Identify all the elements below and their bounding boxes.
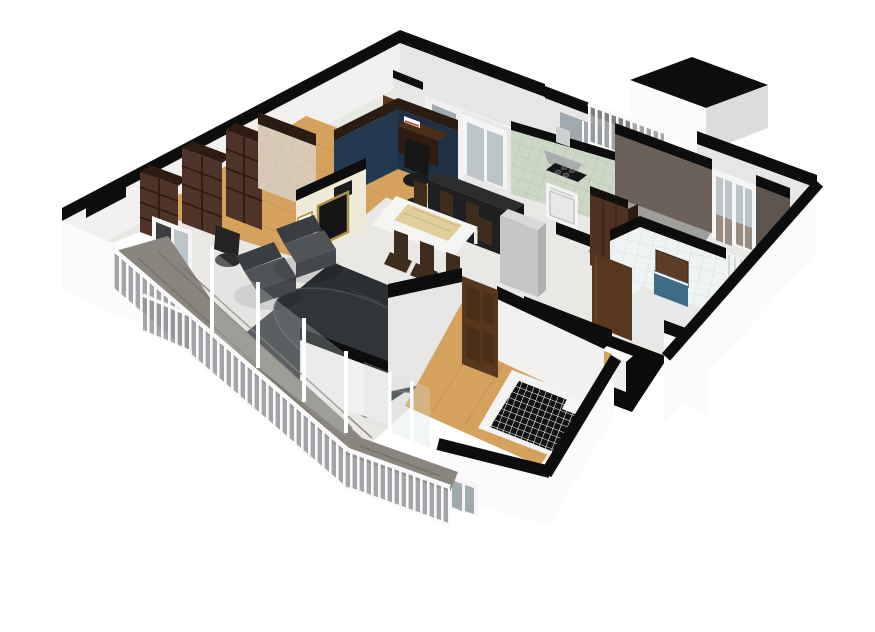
glass-post-4 <box>344 351 348 433</box>
bedroom-glass-post-1 <box>388 372 392 434</box>
fridge-column <box>500 209 546 297</box>
floor-plan-render <box>0 0 875 632</box>
glass-post-1 <box>210 246 214 332</box>
bedroom-glass-post-2 <box>410 381 414 443</box>
glass-post-3 <box>302 318 306 402</box>
apartment-3d-svg <box>0 0 875 632</box>
glass-post-2 <box>256 282 260 368</box>
